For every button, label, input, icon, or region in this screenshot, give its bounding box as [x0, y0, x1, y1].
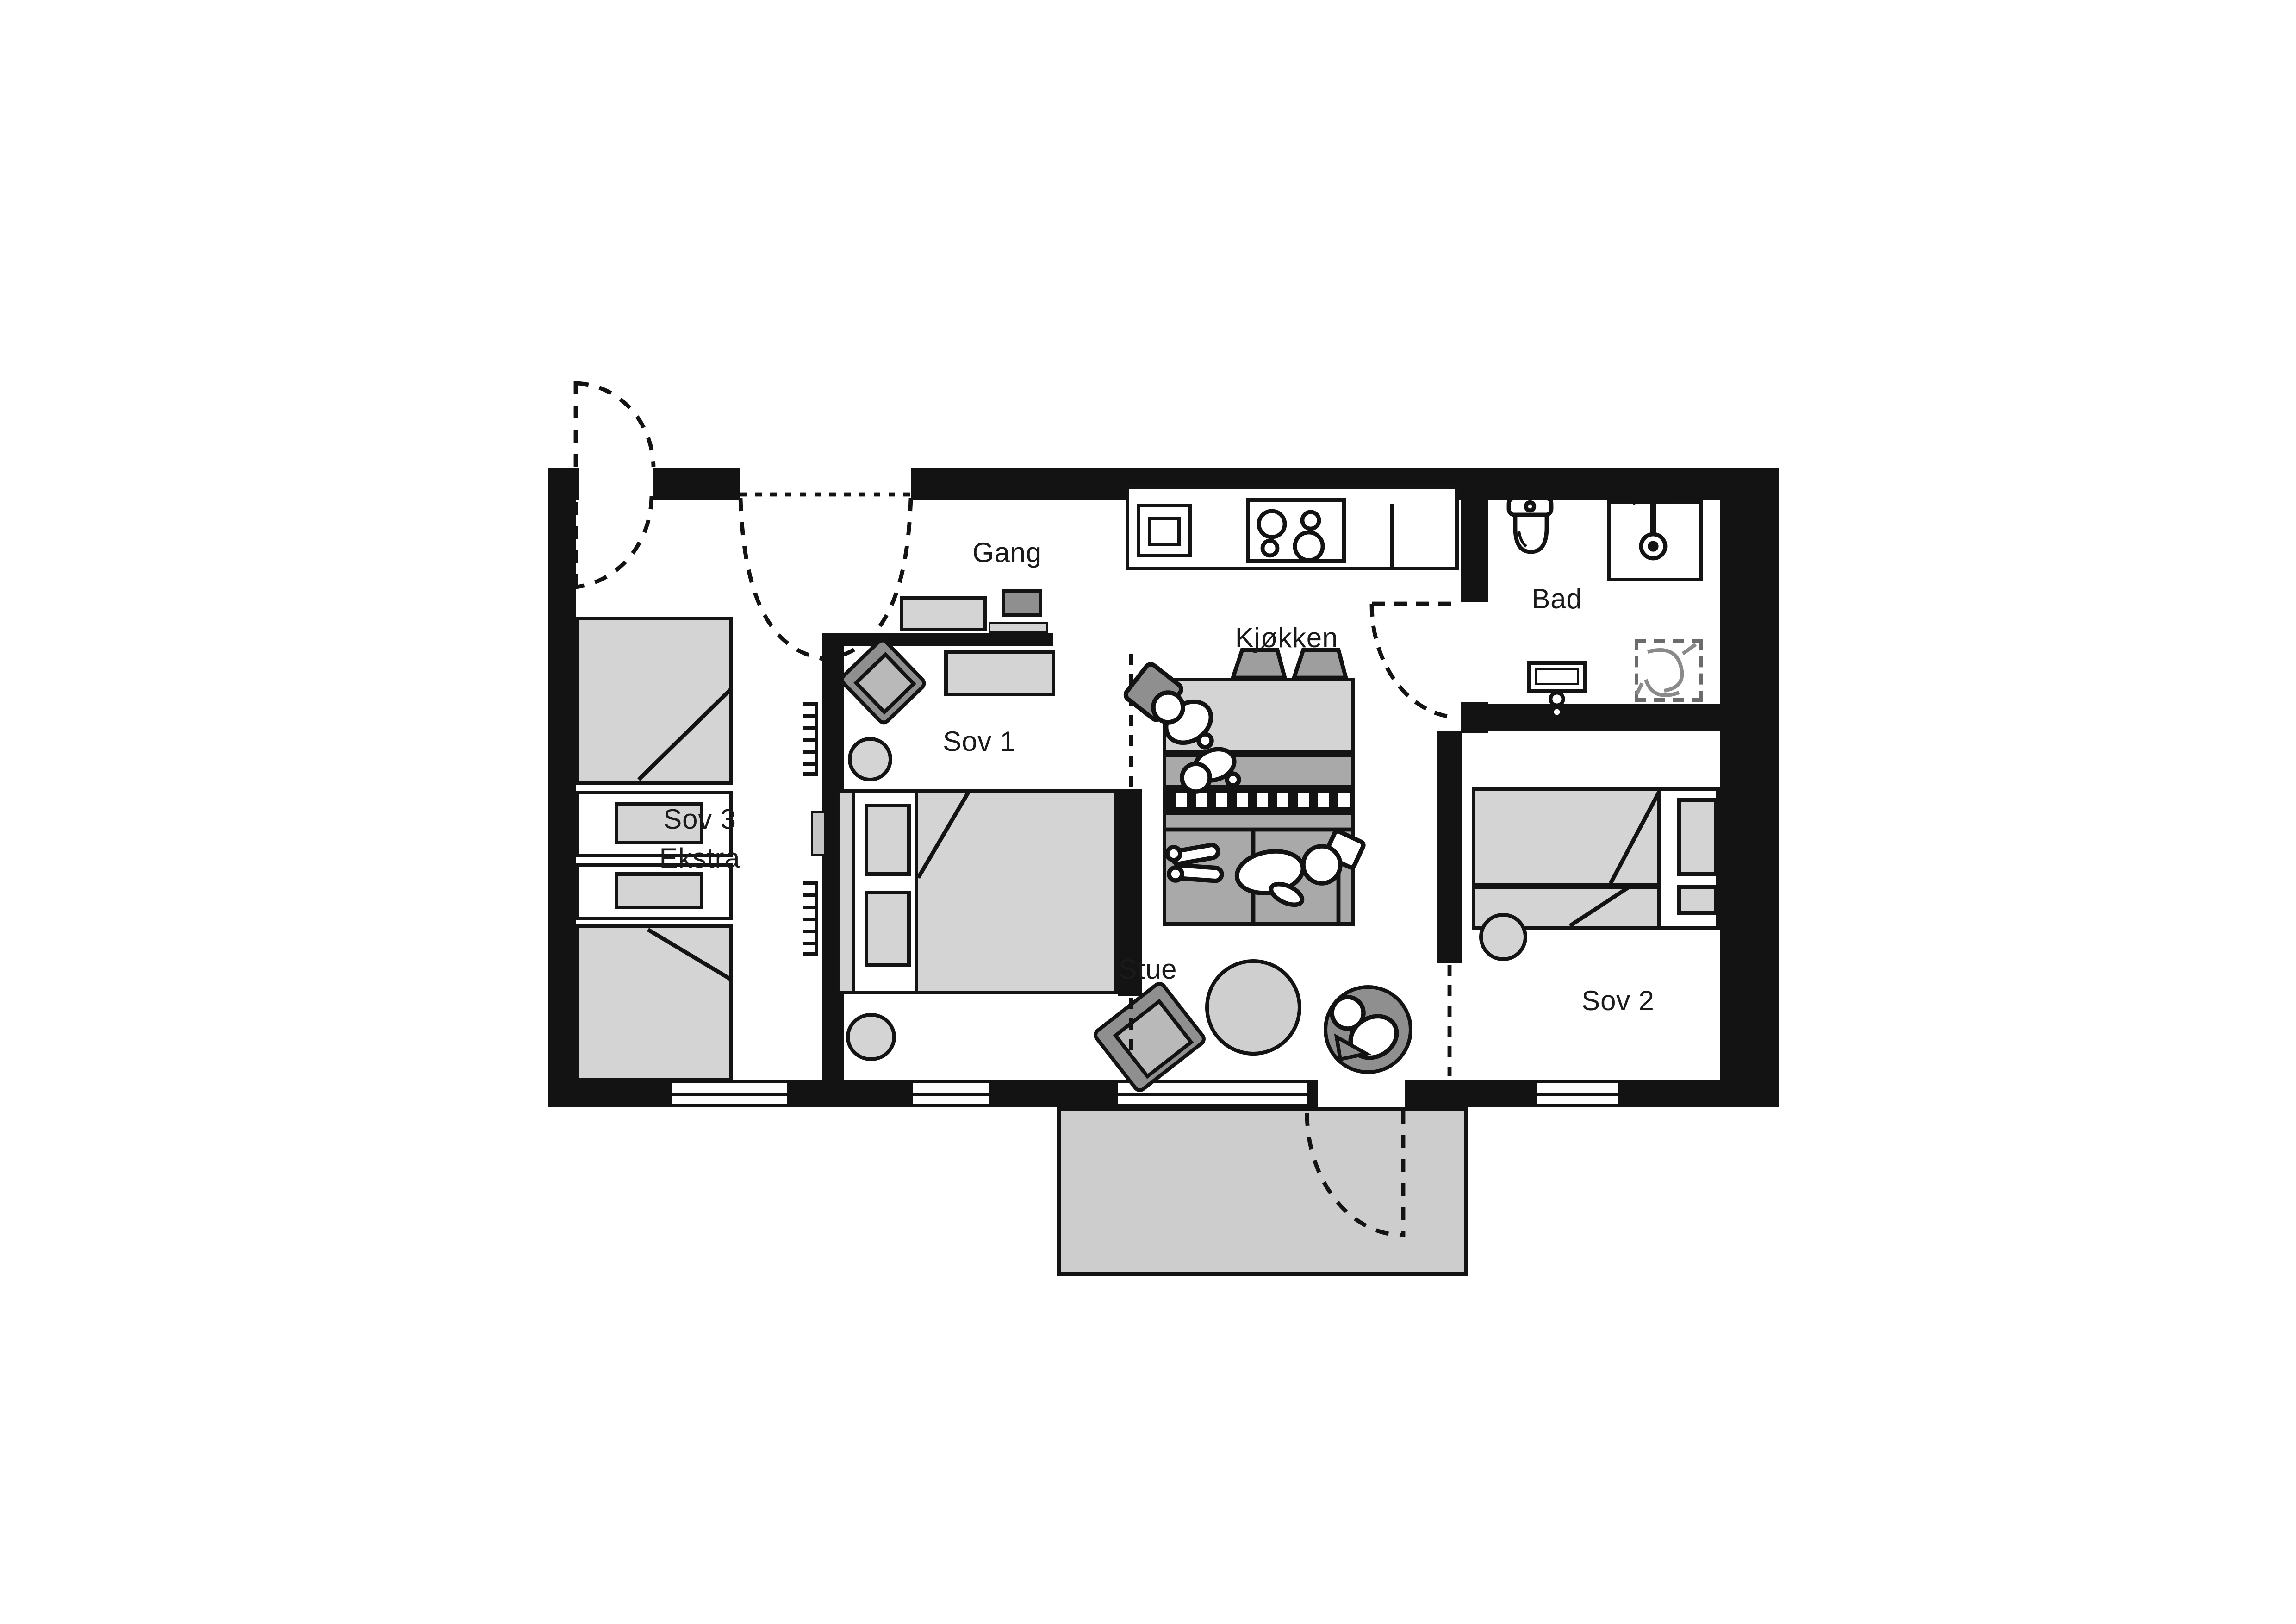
window-sov1 — [913, 1080, 989, 1107]
bed-mattress-sov2 — [1472, 787, 1661, 930]
window-glass-line — [913, 1092, 989, 1095]
kitchen-counter-divider — [1390, 504, 1394, 567]
striped-rug — [1163, 789, 1355, 811]
ottoman-sov1-top — [848, 737, 892, 781]
laptop-gang — [1002, 589, 1042, 617]
wall-bottom-2 — [787, 1080, 913, 1107]
shelf-2-inner — [615, 872, 703, 909]
floorplan: Gang Kjøkken Bad Sov 1 Sov 2 Sov 3 Ekstr… — [0, 0, 2296, 1624]
room-label-sov1: Sov 1 — [943, 727, 1015, 758]
room-label-sov3-line1: Sov 3 — [663, 805, 736, 836]
pillow-1-sov1 — [865, 804, 911, 876]
wall-bottom-1 — [548, 1080, 672, 1107]
wall-kitchen-bad-top — [1461, 500, 1488, 602]
wall-bottom-3 — [989, 1080, 1118, 1107]
room-label-kjokken: Kjøkken — [1235, 623, 1338, 655]
wall-bad-sov2 — [1461, 704, 1720, 731]
wall-left — [548, 468, 576, 1107]
nightstand-2-sov2 — [1677, 885, 1718, 915]
bed-mattress-sov1 — [915, 789, 1118, 994]
window-sov2 — [1537, 1080, 1618, 1107]
door-bad-arc-icon — [1372, 604, 1450, 717]
ottoman-sov1-bottom — [846, 1013, 896, 1061]
bed-headboard-sov1 — [837, 789, 855, 994]
pillow-2-sov1 — [865, 891, 911, 967]
room-label-stue: Stue — [1119, 955, 1177, 986]
pouf-sov2 — [1479, 913, 1527, 961]
shelf-gang — [989, 622, 1048, 633]
wall-stue-sov2 — [1437, 731, 1462, 963]
desk-sov1 — [944, 650, 1055, 696]
kitchen-sink-inner — [1148, 517, 1181, 546]
wardrobe-bottom-sov3 — [576, 924, 733, 1081]
round-chair — [1324, 985, 1412, 1074]
wall-bottom-6 — [1618, 1080, 1720, 1107]
shower — [1607, 500, 1703, 581]
wall-bottom-5 — [1405, 1080, 1537, 1107]
window-glass-line — [672, 1092, 787, 1095]
wall-switch-panel — [811, 811, 826, 856]
radiator-1-icon — [803, 702, 816, 776]
room-label-gang: Gang — [972, 538, 1042, 569]
floorplan-viewport: Gang Kjøkken Bad Sov 1 Sov 2 Sov 3 Ekstr… — [0, 0, 2296, 1624]
bed-mattress-divide — [1475, 883, 1657, 888]
wall-right — [1720, 468, 1779, 1107]
sideboard-gang — [900, 596, 987, 631]
room-label-bad: Bad — [1531, 584, 1582, 616]
washing-machine — [1635, 639, 1703, 702]
radiator-2-icon — [803, 881, 816, 956]
dining-bench — [1163, 754, 1355, 789]
door-swing-entry-arc-out-icon — [576, 383, 653, 467]
wall-bottom-4 — [1307, 1080, 1318, 1107]
window-glass-line — [1537, 1092, 1618, 1095]
window-sov3 — [672, 1080, 787, 1107]
wardrobe-top-sov3 — [576, 617, 733, 785]
sofa — [1163, 811, 1355, 926]
coffee-table — [1205, 959, 1301, 1056]
room-label-sov3-line2: Ekstra — [660, 843, 740, 875]
window-glass-line — [1118, 1092, 1307, 1095]
dining-table — [1163, 678, 1355, 754]
balcony — [1057, 1107, 1468, 1276]
toilet-icon — [1509, 498, 1551, 552]
mirror-inner-line — [1535, 668, 1579, 685]
door-swing-entry-arc-in-icon — [576, 496, 652, 587]
stove-icon — [1246, 498, 1346, 563]
plan-symbols — [0, 0, 2296, 1624]
nightstand-sov2 — [1677, 798, 1718, 876]
room-label-sov2: Sov 2 — [1581, 986, 1654, 1018]
wall-top-mid — [653, 468, 740, 500]
door-gang-arc-left-icon — [740, 498, 826, 659]
